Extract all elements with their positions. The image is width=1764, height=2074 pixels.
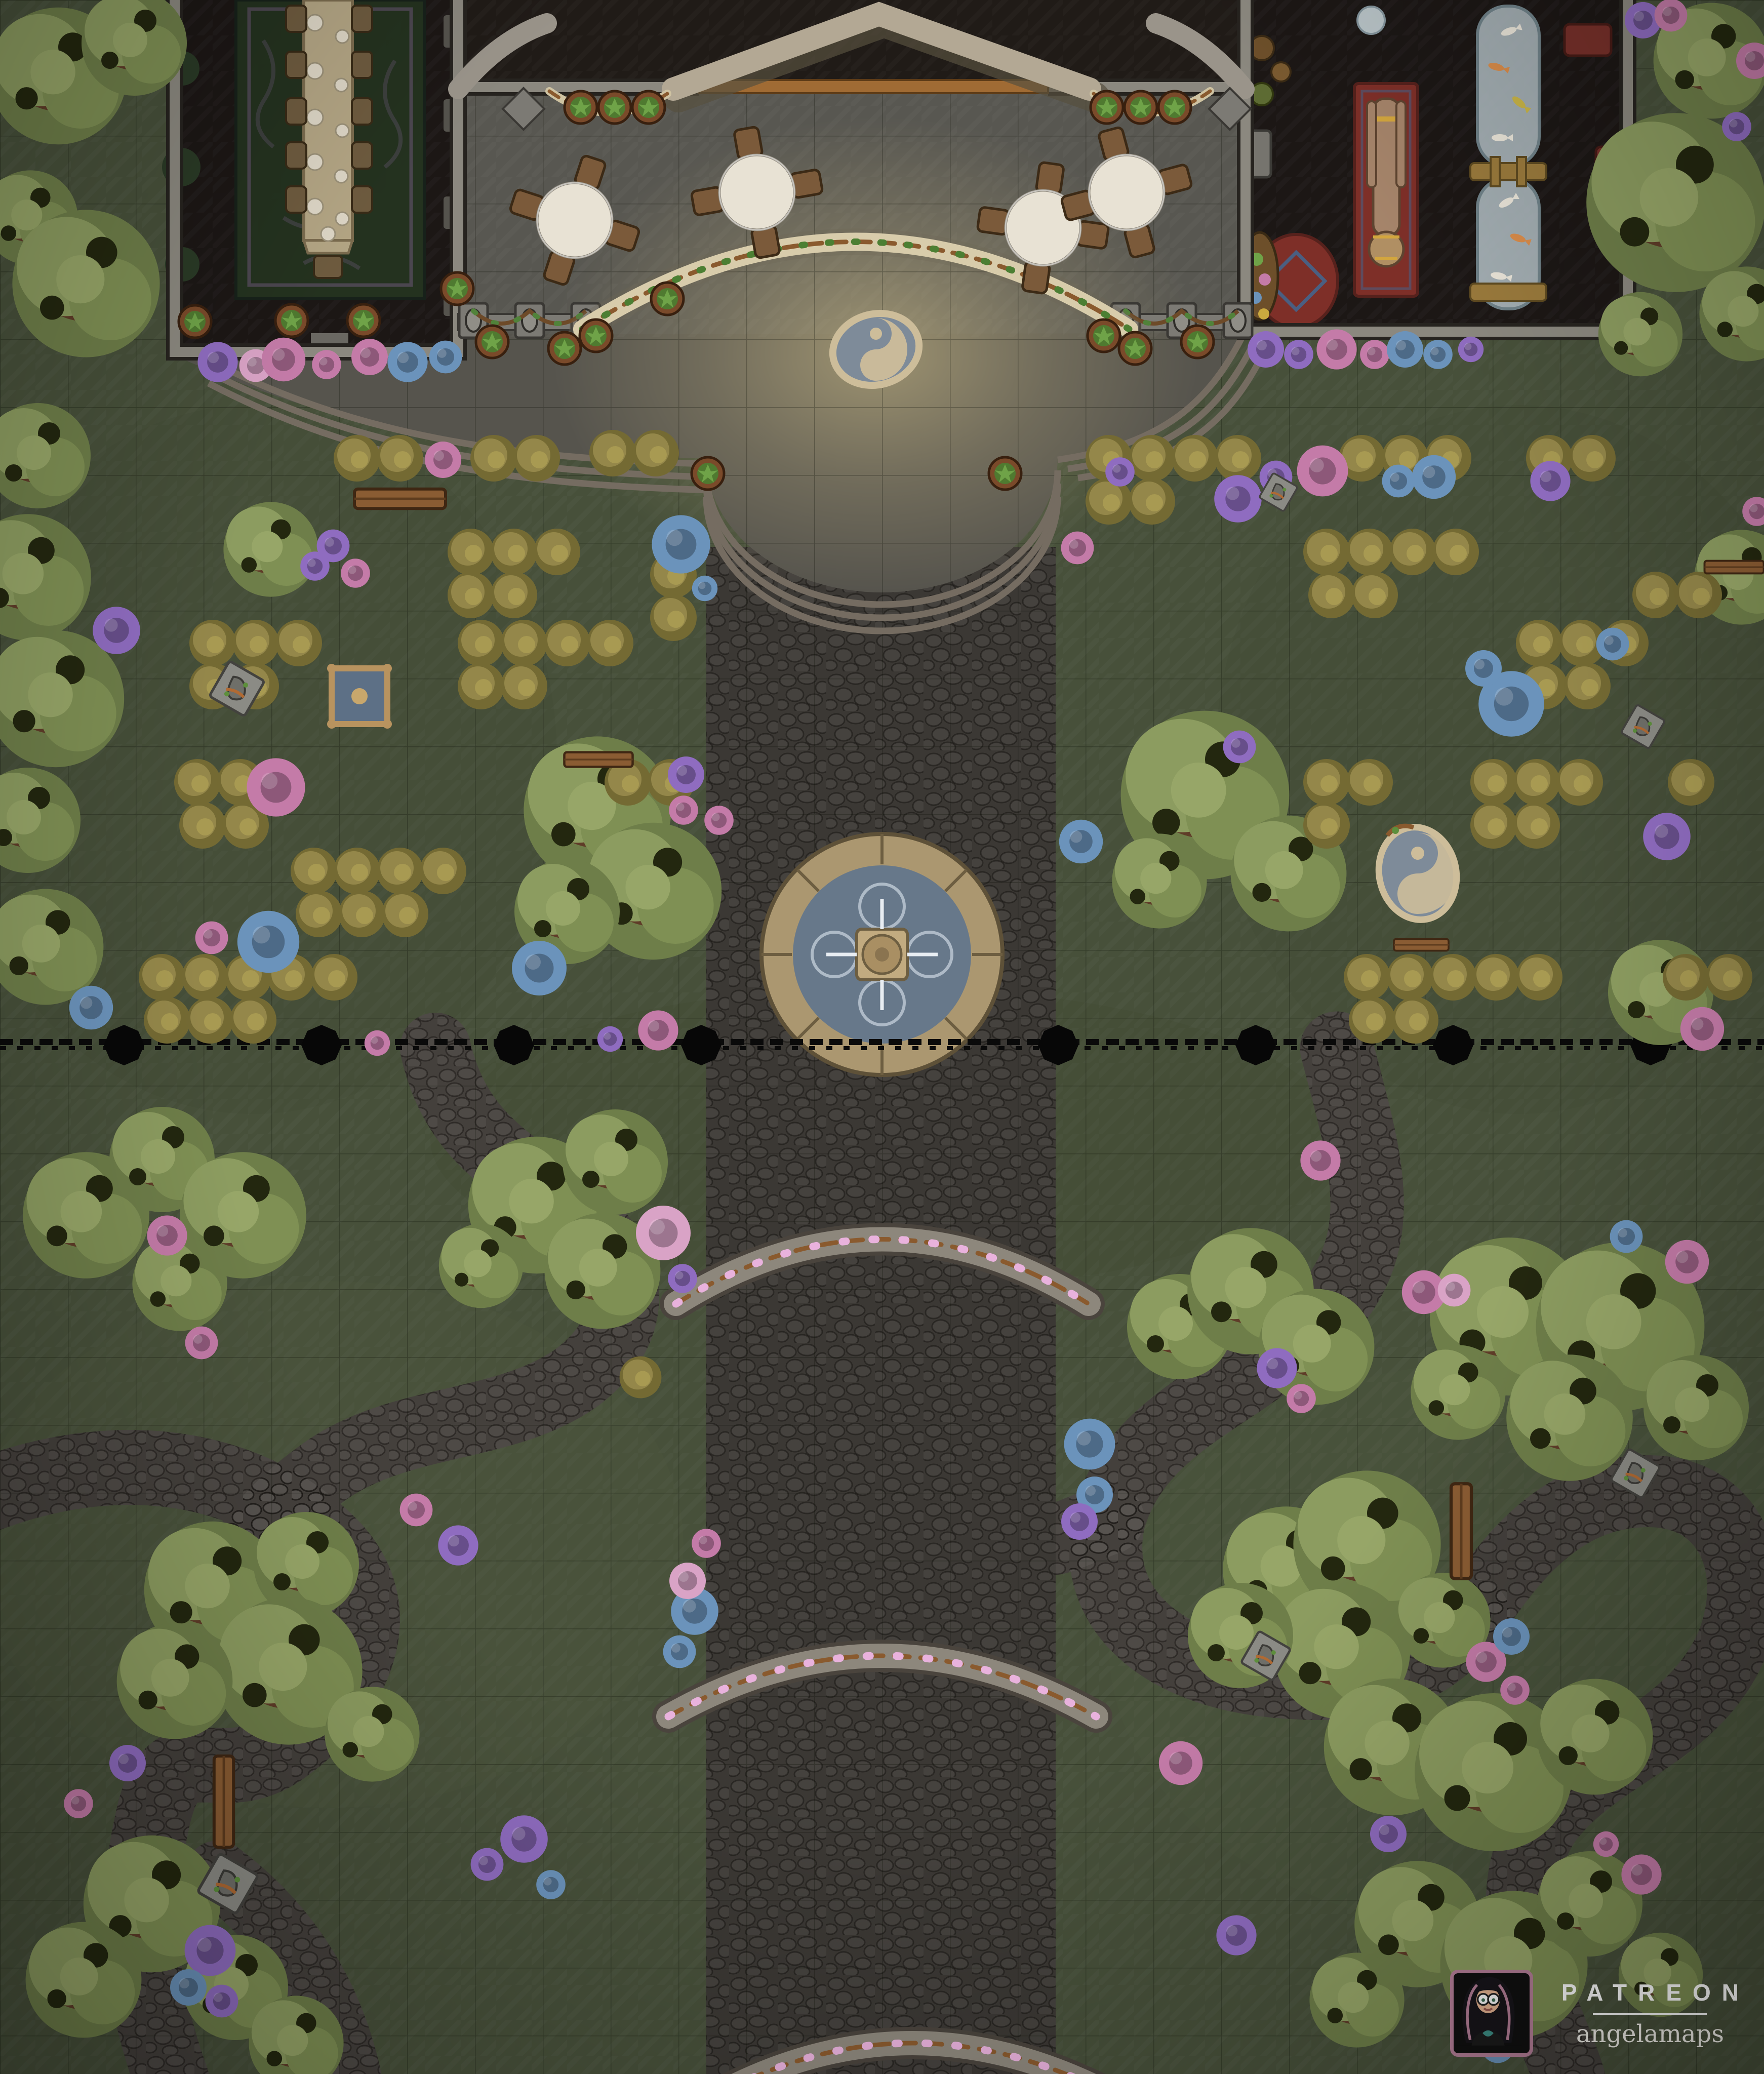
statue-on-red-runner [1354, 84, 1418, 296]
watermark-divider [1593, 2013, 1707, 2015]
map-artwork [0, 0, 1764, 2074]
aquarium-hall [1241, 0, 1628, 332]
patreon-brand-label: PATREON [1550, 1979, 1750, 2006]
glass-orb [1357, 7, 1385, 34]
battle-map: PATREON angelamaps [0, 0, 1764, 2074]
square-water-basin [327, 664, 392, 729]
central-fountain [761, 834, 1003, 1075]
artist-avatar-icon [1450, 1970, 1533, 2057]
dining-hall [162, 0, 459, 353]
watermark: PATREON angelamaps [1450, 1970, 1750, 2057]
author-label: angelamaps [1576, 2020, 1724, 2048]
banquet-table [304, 0, 352, 253]
